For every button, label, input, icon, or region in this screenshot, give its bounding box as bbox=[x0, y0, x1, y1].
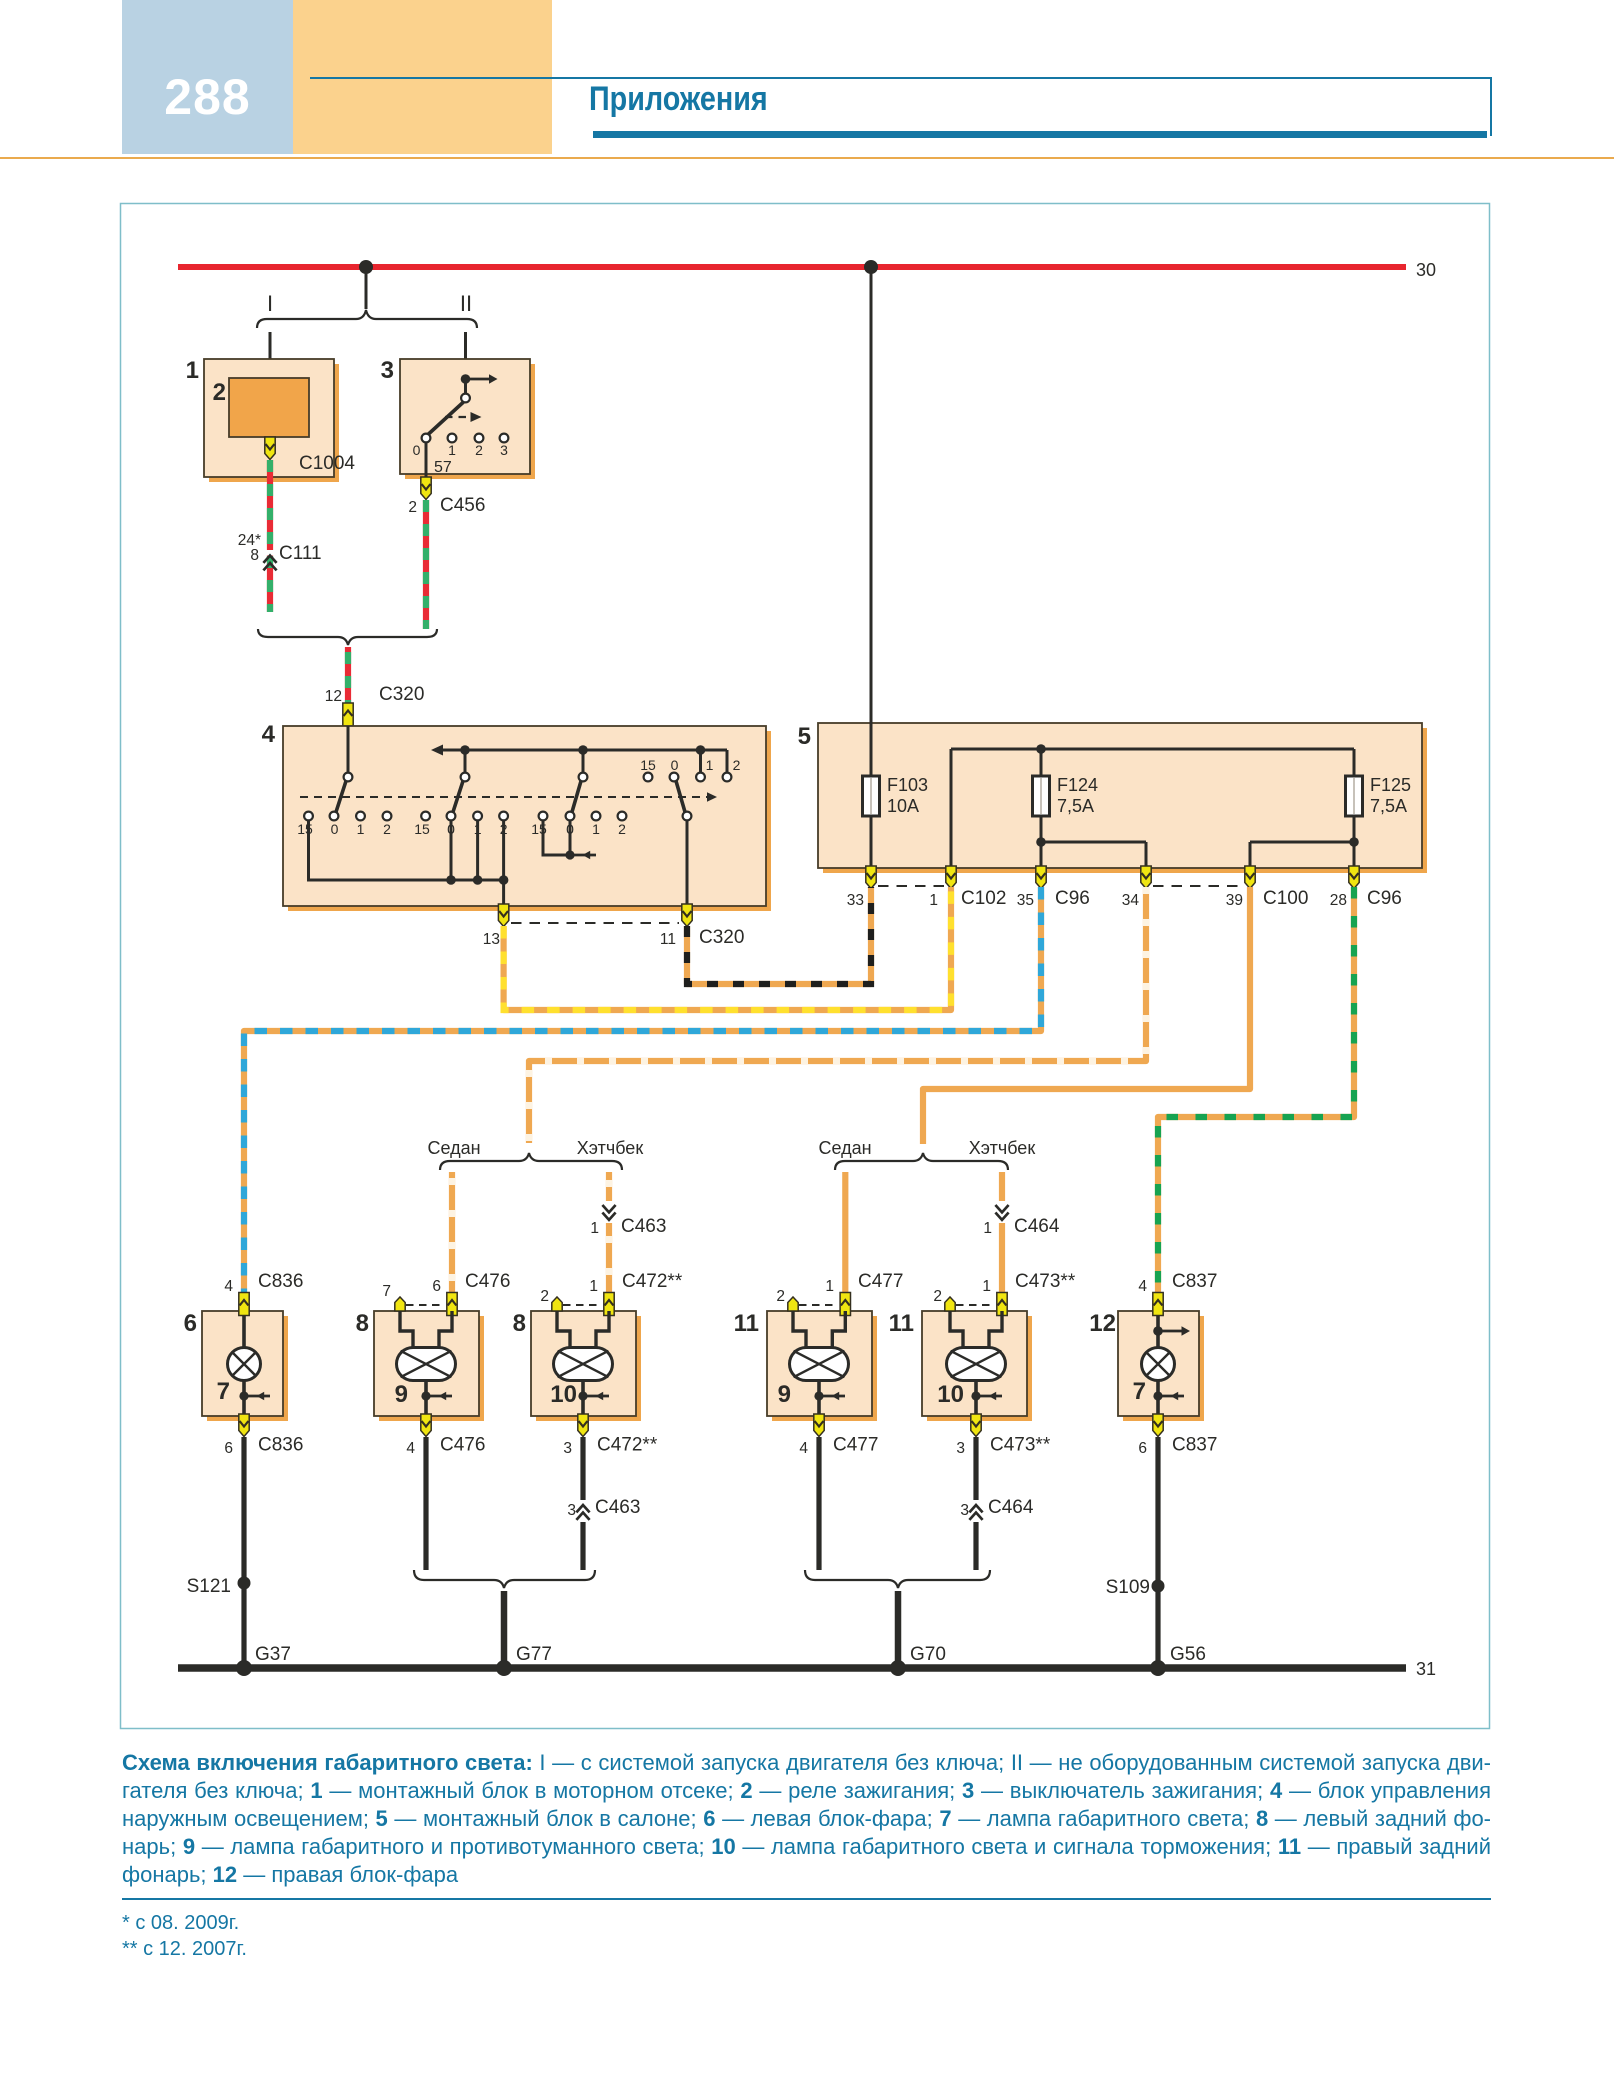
svg-text:C837: C837 bbox=[1172, 1271, 1217, 1292]
svg-text:31: 31 bbox=[1416, 1659, 1436, 1679]
svg-text:1: 1 bbox=[448, 442, 456, 458]
svg-text:4: 4 bbox=[799, 1440, 808, 1457]
svg-text:2: 2 bbox=[733, 757, 741, 773]
svg-text:11: 11 bbox=[889, 1310, 914, 1337]
svg-text:3: 3 bbox=[381, 357, 394, 384]
svg-text:1: 1 bbox=[706, 757, 714, 773]
svg-text:8: 8 bbox=[356, 1310, 369, 1337]
svg-text:C100: C100 bbox=[1263, 888, 1308, 909]
svg-text:8: 8 bbox=[250, 547, 259, 564]
svg-text:1: 1 bbox=[590, 1220, 599, 1237]
svg-text:3: 3 bbox=[956, 1440, 965, 1457]
svg-text:4: 4 bbox=[262, 721, 276, 748]
svg-text:35: 35 bbox=[1017, 892, 1034, 909]
svg-text:1: 1 bbox=[589, 1278, 598, 1295]
svg-text:11: 11 bbox=[660, 931, 676, 948]
svg-text:3: 3 bbox=[960, 1502, 969, 1519]
svg-text:7,5A: 7,5A bbox=[1057, 796, 1094, 816]
svg-text:2: 2 bbox=[776, 1288, 785, 1305]
svg-text:1: 1 bbox=[825, 1278, 834, 1295]
svg-text:G77: G77 bbox=[516, 1644, 552, 1665]
svg-text:1: 1 bbox=[983, 1220, 992, 1237]
svg-text:6: 6 bbox=[432, 1278, 441, 1295]
svg-text:28: 28 bbox=[1330, 892, 1347, 909]
svg-text:4: 4 bbox=[224, 1278, 233, 1295]
svg-text:II: II bbox=[460, 291, 472, 316]
svg-text:12: 12 bbox=[325, 688, 342, 705]
svg-text:15: 15 bbox=[297, 821, 313, 837]
svg-text:C472**: C472** bbox=[597, 1435, 658, 1456]
svg-text:30: 30 bbox=[1416, 260, 1436, 280]
svg-text:9: 9 bbox=[778, 1381, 791, 1408]
svg-text:C96: C96 bbox=[1367, 888, 1402, 909]
svg-text:4: 4 bbox=[1138, 1278, 1147, 1295]
svg-text:C473**: C473** bbox=[990, 1435, 1051, 1456]
svg-text:0: 0 bbox=[671, 757, 679, 773]
svg-text:C476: C476 bbox=[465, 1271, 510, 1292]
svg-text:C320: C320 bbox=[699, 927, 744, 948]
svg-text:Седан: Седан bbox=[427, 1138, 480, 1158]
svg-text:6: 6 bbox=[184, 1310, 197, 1337]
svg-text:C463: C463 bbox=[621, 1216, 666, 1237]
svg-text:0: 0 bbox=[331, 821, 339, 837]
svg-text:9: 9 bbox=[395, 1381, 408, 1408]
svg-text:15: 15 bbox=[414, 821, 430, 837]
svg-text:1: 1 bbox=[929, 892, 938, 909]
svg-text:C472**: C472** bbox=[622, 1271, 683, 1292]
svg-text:S121: S121 bbox=[187, 1576, 231, 1597]
svg-text:C111: C111 bbox=[279, 543, 322, 564]
svg-text:Хэтчбек: Хэтчбек bbox=[577, 1138, 644, 1158]
svg-text:0: 0 bbox=[413, 442, 421, 458]
svg-text:6: 6 bbox=[1138, 1440, 1147, 1457]
svg-text:7: 7 bbox=[1133, 1378, 1146, 1405]
svg-text:Седан: Седан bbox=[818, 1138, 871, 1158]
svg-text:3: 3 bbox=[563, 1440, 572, 1457]
svg-text:C463: C463 bbox=[595, 1497, 640, 1518]
svg-text:C836: C836 bbox=[258, 1271, 303, 1292]
svg-text:8: 8 bbox=[513, 1310, 526, 1337]
svg-text:C473**: C473** bbox=[1015, 1271, 1076, 1292]
svg-text:10: 10 bbox=[937, 1381, 964, 1408]
svg-text:G56: G56 bbox=[1170, 1644, 1206, 1665]
svg-text:7: 7 bbox=[217, 1378, 230, 1405]
svg-text:13: 13 bbox=[483, 931, 500, 948]
svg-text:33: 33 bbox=[847, 892, 864, 909]
svg-text:5: 5 bbox=[798, 723, 811, 750]
svg-text:10A: 10A bbox=[887, 796, 919, 816]
svg-text:F103: F103 bbox=[887, 775, 928, 795]
svg-text:C456: C456 bbox=[440, 495, 485, 516]
svg-text:2: 2 bbox=[213, 379, 226, 406]
svg-text:2: 2 bbox=[618, 821, 626, 837]
svg-text:C1004: C1004 bbox=[299, 453, 355, 474]
svg-text:2: 2 bbox=[408, 499, 417, 516]
svg-text:C836: C836 bbox=[258, 1435, 303, 1456]
svg-text:G70: G70 bbox=[910, 1644, 946, 1665]
svg-text:34: 34 bbox=[1122, 892, 1140, 909]
svg-text:C476: C476 bbox=[440, 1435, 485, 1456]
svg-text:C477: C477 bbox=[833, 1435, 878, 1456]
svg-text:C320: C320 bbox=[379, 684, 424, 705]
svg-text:2: 2 bbox=[475, 442, 483, 458]
svg-text:C464: C464 bbox=[988, 1497, 1034, 1518]
svg-text:I: I bbox=[267, 291, 273, 316]
svg-text:2: 2 bbox=[383, 821, 391, 837]
svg-text:3: 3 bbox=[567, 1502, 576, 1519]
svg-text:1: 1 bbox=[186, 357, 199, 384]
svg-text:7,5A: 7,5A bbox=[1370, 796, 1407, 816]
svg-text:3: 3 bbox=[500, 442, 508, 458]
svg-text:12: 12 bbox=[1089, 1310, 1116, 1337]
svg-text:Хэтчбек: Хэтчбек bbox=[969, 1138, 1036, 1158]
svg-text:F125: F125 bbox=[1370, 775, 1411, 795]
svg-text:F124: F124 bbox=[1057, 775, 1098, 795]
svg-text:7: 7 bbox=[382, 1283, 391, 1300]
svg-text:15: 15 bbox=[640, 757, 656, 773]
svg-text:S109: S109 bbox=[1106, 1577, 1150, 1598]
svg-text:10: 10 bbox=[550, 1381, 577, 1408]
svg-text:C96: C96 bbox=[1055, 888, 1090, 909]
svg-text:C464: C464 bbox=[1014, 1216, 1060, 1237]
svg-text:1: 1 bbox=[982, 1278, 991, 1295]
svg-text:G37: G37 bbox=[255, 1644, 291, 1665]
svg-text:C837: C837 bbox=[1172, 1435, 1217, 1456]
svg-text:C102: C102 bbox=[961, 888, 1006, 909]
svg-text:2: 2 bbox=[540, 1288, 549, 1305]
svg-text:1: 1 bbox=[357, 821, 365, 837]
svg-text:1: 1 bbox=[592, 821, 600, 837]
svg-text:C477: C477 bbox=[858, 1271, 903, 1292]
svg-text:11: 11 bbox=[734, 1310, 759, 1337]
svg-text:2: 2 bbox=[933, 1288, 942, 1305]
svg-text:39: 39 bbox=[1226, 892, 1243, 909]
svg-text:57: 57 bbox=[434, 459, 452, 476]
svg-text:15: 15 bbox=[531, 821, 547, 837]
svg-text:4: 4 bbox=[406, 1440, 415, 1457]
svg-text:6: 6 bbox=[224, 1440, 233, 1457]
